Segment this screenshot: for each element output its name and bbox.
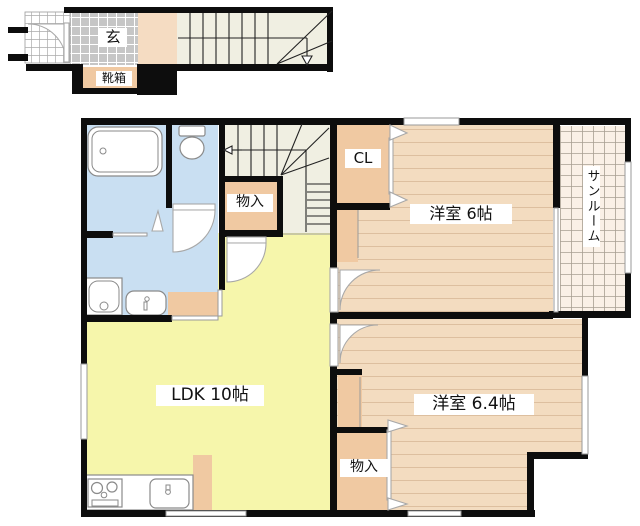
wash-basin-icon [126,291,166,315]
slider-washroom-entry [218,290,222,316]
kitchen-counter-icon [85,475,193,510]
toilet-door-leaf [173,204,215,210]
understair-storage-door-leaf [227,237,266,243]
bathtub-icon [88,127,162,176]
bedroom1-door-leaf [330,268,338,312]
closet-cl-door-track [389,138,393,194]
toilet-icon [179,126,205,159]
window-bedroom1-top [404,118,459,125]
label-sunroom: サンルーム [583,166,600,247]
label-shoe-box: 靴箱 [96,71,132,86]
window-ldk-left [81,364,87,439]
window-bedroom2-bottom [408,511,461,516]
label-understair-storage: 物入 [227,194,273,212]
washroom-counter [168,292,218,317]
entrance-door-leaf [64,23,69,62]
window-bedroom2-right [582,376,588,454]
label-bedroom2: 洋室 6.4帖 [414,394,534,415]
duct-block-lower [338,375,362,427]
label-entrance: 玄 [99,28,127,47]
label-closet-cl: CL [345,149,381,168]
floor-plan: 玄 靴箱 物入 CL 洋室 6帖 サンルーム LDK 10帖 洋室 6.4帖 物… [0,0,640,526]
slider-washroom-south [172,316,218,320]
window-sunroom-right [625,162,631,273]
bath-door-track [113,233,147,236]
label-storage2: 物入 [340,459,388,477]
bedroom2-door-leaf [330,324,338,366]
kitchen-end-panel [193,455,212,512]
label-ldk: LDK 10帖 [156,385,264,406]
window-kitchen-bottom [166,511,246,516]
hall-floor [138,12,177,65]
duct-block-upper [337,208,358,262]
label-bedroom1: 洋室 6帖 [410,204,512,224]
washing-machine-pan-icon [86,278,122,315]
floors [25,12,625,514]
slider-bedroom1-sunroom [554,208,558,312]
